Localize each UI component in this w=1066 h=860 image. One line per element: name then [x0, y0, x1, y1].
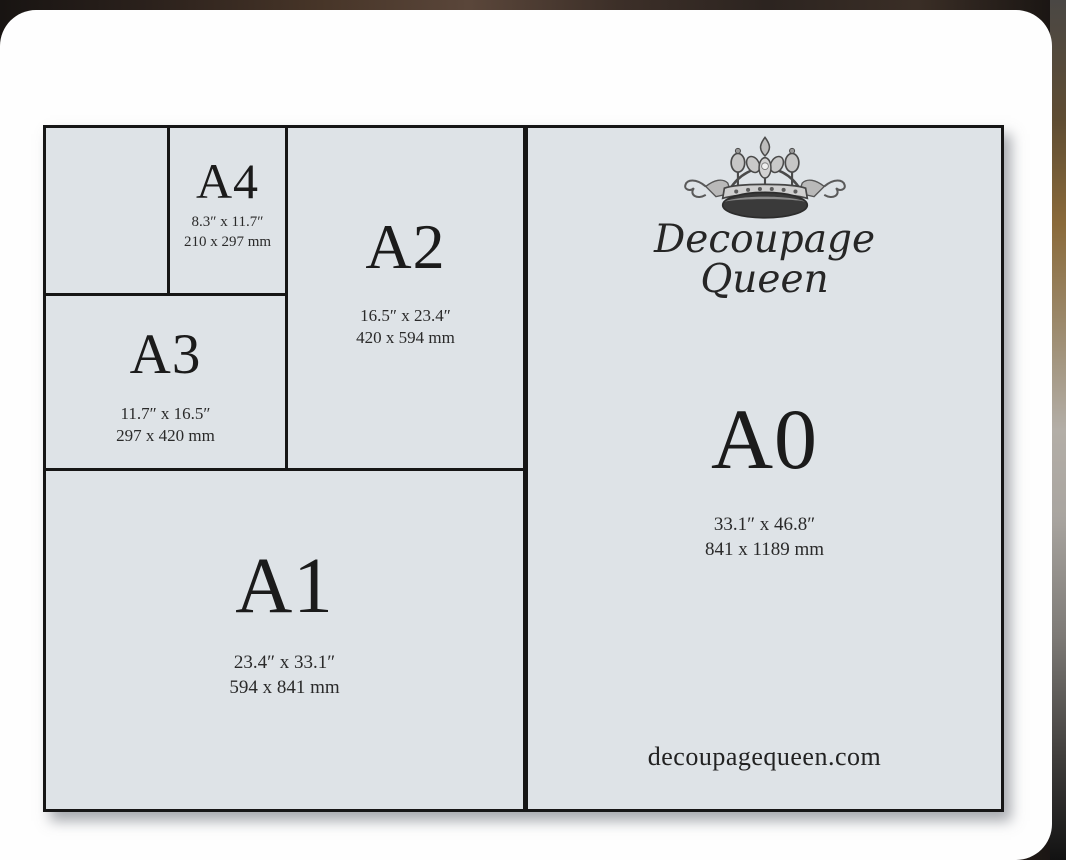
- a4-size-block: A4 8.3″ x 11.7″ 210 x 297 mm: [170, 156, 285, 253]
- brand-name-line1: Decoupage: [654, 217, 875, 262]
- cell-empty: [46, 128, 167, 293]
- cell-a2: A2 16.5″ x 23.4″ 420 x 594 mm: [288, 128, 523, 468]
- a3-label: A3: [46, 326, 285, 383]
- a1-size-block: A1 23.4″ x 33.1″ 594 x 841 mm: [46, 547, 523, 700]
- a2-dimensions: 16.5″ x 23.4″ 420 x 594 mm: [288, 305, 523, 350]
- a2-inches: 16.5″ x 23.4″: [288, 305, 523, 327]
- a1-millimeters: 594 x 841 mm: [46, 675, 523, 700]
- a4-millimeters: 210 x 297 mm: [170, 233, 285, 253]
- a1-dimensions: 23.4″ x 33.1″ 594 x 841 mm: [46, 650, 523, 700]
- a0-label: A0: [528, 396, 1001, 482]
- a3-millimeters: 297 x 420 mm: [46, 425, 285, 447]
- a4-dimensions: 8.3″ x 11.7″ 210 x 297 mm: [170, 213, 285, 253]
- cell-a1: A1 23.4″ x 33.1″ 594 x 841 mm: [46, 471, 523, 809]
- content-card: A4 8.3″ x 11.7″ 210 x 297 mm A3 11.7″ x …: [0, 10, 1052, 860]
- paper-size-diagram: A4 8.3″ x 11.7″ 210 x 297 mm A3 11.7″ x …: [43, 125, 1004, 812]
- a0-dimensions: 33.1″ x 46.8″ 841 x 1189 mm: [528, 512, 1001, 562]
- background-right-strip: [1050, 0, 1066, 860]
- a1-inches: 23.4″ x 33.1″: [46, 650, 523, 675]
- a2-millimeters: 420 x 594 mm: [288, 327, 523, 349]
- brand-name-line2: Queen: [528, 260, 1001, 300]
- a2-label: A2: [288, 215, 523, 279]
- website-url: decoupagequeen.com: [528, 742, 1001, 772]
- page: { "brand": { "name_line1": "Decoupage", …: [0, 0, 1066, 860]
- brand-wordmark: Decoupage Queen: [528, 220, 1001, 300]
- cell-a3: A3 11.7″ x 16.5″ 297 x 420 mm: [46, 296, 285, 468]
- cell-a0: Decoupage Queen A0 33.1″ x 46.8″ 841 x 1…: [528, 128, 1001, 809]
- a3-inches: 11.7″ x 16.5″: [46, 403, 285, 425]
- a0-millimeters: 841 x 1189 mm: [528, 537, 1001, 562]
- a3-dimensions: 11.7″ x 16.5″ 297 x 420 mm: [46, 403, 285, 448]
- a0-inches: 33.1″ x 46.8″: [528, 512, 1001, 537]
- crown-icon: [680, 134, 850, 222]
- a3-size-block: A3 11.7″ x 16.5″ 297 x 420 mm: [46, 326, 285, 448]
- a2-size-block: A2 16.5″ x 23.4″ 420 x 594 mm: [288, 215, 523, 350]
- a0-size-block: A0 33.1″ x 46.8″ 841 x 1189 mm: [528, 396, 1001, 562]
- cell-a4: A4 8.3″ x 11.7″ 210 x 297 mm: [170, 128, 285, 293]
- a1-label: A1: [46, 547, 523, 626]
- a4-inches: 8.3″ x 11.7″: [170, 213, 285, 233]
- a4-label: A4: [170, 156, 285, 206]
